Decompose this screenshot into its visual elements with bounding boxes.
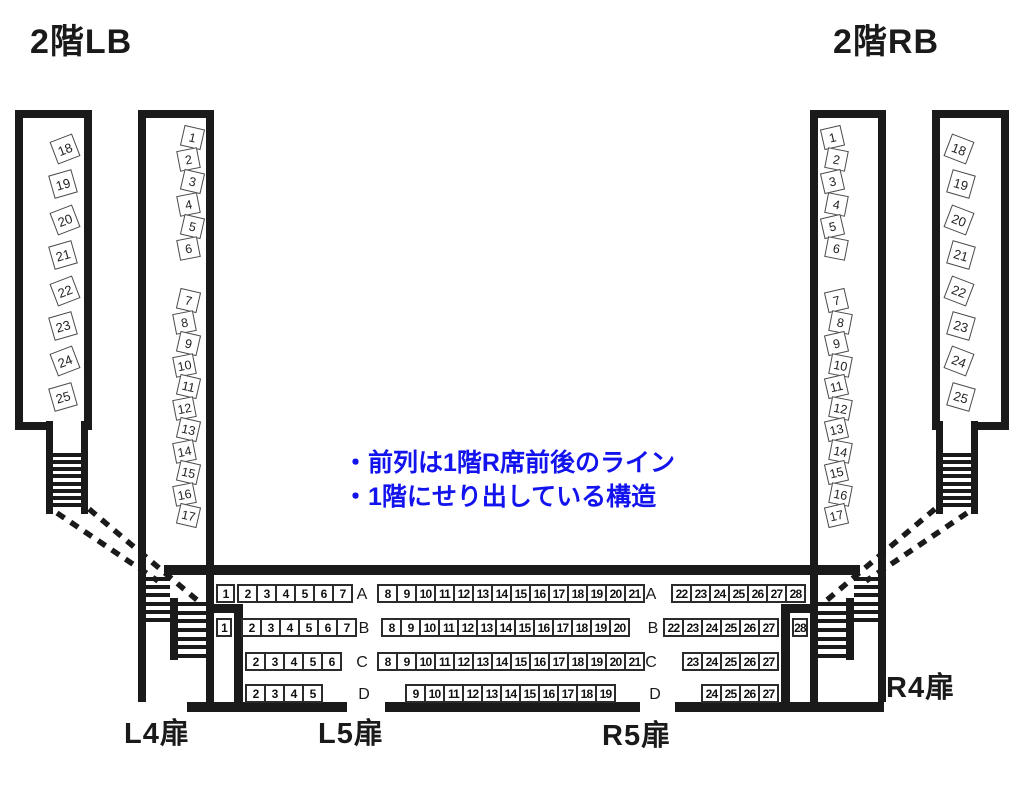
seat[interactable]: 2	[241, 618, 262, 637]
seat[interactable]: 14	[500, 684, 521, 703]
seat[interactable]: 23	[682, 652, 703, 671]
seat[interactable]: 14	[172, 439, 197, 464]
wall	[206, 575, 214, 702]
row-c-label: C	[640, 654, 662, 672]
stair-step	[943, 482, 971, 486]
seat[interactable]: 7	[175, 288, 200, 313]
seat[interactable]: 2	[237, 584, 258, 603]
seat[interactable]: 19	[590, 618, 611, 637]
seat[interactable]: 18	[571, 618, 592, 637]
stair-step	[854, 577, 878, 581]
seat[interactable]: 15	[823, 460, 848, 485]
wall	[138, 575, 146, 702]
seat[interactable]: 16	[529, 652, 550, 671]
seat[interactable]: 13	[472, 584, 493, 603]
stair-step	[854, 593, 878, 597]
seat[interactable]: 13	[823, 417, 848, 442]
seat[interactable]: 10	[419, 618, 440, 637]
row-b-label: B	[353, 620, 375, 638]
seat[interactable]: 12	[453, 652, 474, 671]
seat[interactable]: 26	[739, 684, 760, 703]
seat[interactable]: 22	[663, 618, 684, 637]
seat[interactable]: 17	[557, 684, 578, 703]
stair-step	[146, 618, 170, 622]
row-b-right-block: 222324252627	[663, 618, 779, 637]
seat[interactable]: 16	[529, 584, 550, 603]
door-label-r5: R5扉	[602, 712, 671, 754]
row-a-right-block: 22232425262728	[671, 584, 806, 603]
seat[interactable]: 12	[172, 396, 197, 421]
seat[interactable]: 18	[567, 584, 588, 603]
row-a-mid-block: 89101112131415161718192021	[377, 584, 645, 603]
row-c-label: C	[351, 654, 373, 672]
stair-step	[818, 602, 846, 606]
seat[interactable]: 5	[179, 214, 204, 239]
seat[interactable]: 10	[415, 584, 436, 603]
seat[interactable]: 19	[586, 584, 607, 603]
seat[interactable]: 22	[671, 584, 692, 603]
seat[interactable]: 17	[548, 652, 569, 671]
stair-step	[943, 460, 971, 464]
seat[interactable]: 4	[275, 584, 296, 603]
seat[interactable]: 12	[457, 618, 478, 637]
seat[interactable]: 2	[245, 684, 266, 703]
annotation-line-1: ・前列は1階R席前後のライン	[343, 446, 675, 480]
row-b-seat-28: 28	[792, 618, 808, 637]
stair-wall	[46, 421, 53, 514]
seat[interactable]: 24	[709, 584, 730, 603]
seat[interactable]: 9	[396, 652, 417, 671]
seat[interactable]: 14	[491, 584, 512, 603]
seat[interactable]: 9	[405, 684, 426, 703]
seat[interactable]: 16	[172, 482, 197, 507]
annotation-notes: ・前列は1階R席前後のライン ・1階にせり出している構造	[343, 446, 675, 514]
seat[interactable]: 10	[828, 353, 853, 378]
row-d-mid-block: 910111213141516171819	[405, 684, 616, 703]
stair-step	[818, 628, 846, 632]
stair-step	[53, 474, 81, 478]
seat[interactable]: 23	[682, 618, 703, 637]
seat[interactable]: 5	[294, 584, 315, 603]
row-a-label: A	[351, 586, 373, 604]
stair-step	[854, 602, 878, 606]
rb-staircase	[943, 453, 971, 507]
stair-step	[178, 645, 206, 649]
section-title-2f-lb: 2階LB	[30, 14, 132, 63]
seat[interactable]: 4	[279, 618, 300, 637]
seat[interactable]: 15	[175, 460, 200, 485]
l4-staircase	[178, 602, 206, 658]
seat[interactable]: 27	[758, 618, 779, 637]
r4-staircase	[818, 602, 846, 658]
row-c-mid-block: 89101112131415161718192021	[377, 652, 645, 671]
seat[interactable]: 1	[179, 125, 204, 150]
row-d-right-block: 24252627	[701, 684, 779, 703]
stair-wall	[936, 421, 943, 514]
seat[interactable]: 1	[216, 584, 235, 603]
stair-step	[53, 460, 81, 464]
lb-outer-block	[15, 110, 92, 430]
seat[interactable]: 10	[424, 684, 445, 703]
seat[interactable]: 28	[785, 584, 806, 603]
seat[interactable]: 5	[302, 652, 323, 671]
seat[interactable]: 2	[176, 147, 201, 172]
lb-lower-staircase	[146, 577, 170, 622]
wall	[781, 604, 790, 702]
seat[interactable]: 16	[828, 482, 853, 507]
seat[interactable]: 2	[245, 652, 266, 671]
seat[interactable]: 12	[453, 584, 474, 603]
stair-step	[53, 453, 81, 457]
seat[interactable]: 1	[216, 618, 232, 637]
stair-step	[178, 619, 206, 623]
seat[interactable]: 5	[302, 684, 323, 703]
annotation-line-2: ・1階にせり出している構造	[343, 480, 675, 514]
seat[interactable]: 11	[823, 374, 848, 399]
row-d-label: D	[353, 686, 375, 704]
seat[interactable]: 13	[481, 684, 502, 703]
section-title-2f-rb: 2階RB	[833, 14, 939, 63]
seat[interactable]: 9	[823, 331, 848, 356]
seating-chart-2f-balcony: 2階LB 2階RB 1819202122232425 123456 789101…	[0, 0, 1024, 787]
seat[interactable]: 10	[415, 652, 436, 671]
seat[interactable]: 11	[434, 584, 455, 603]
stair-step	[943, 489, 971, 493]
stair-step	[178, 654, 206, 658]
seat[interactable]: 17	[823, 503, 848, 528]
stair-step	[818, 611, 846, 615]
seat[interactable]: 8	[172, 310, 197, 335]
seat[interactable]: 4	[283, 652, 304, 671]
rb-lower-staircase	[854, 577, 878, 622]
stair-step	[178, 602, 206, 606]
seat[interactable]: 11	[438, 618, 459, 637]
seat[interactable]: 19	[595, 684, 616, 703]
stair-step	[178, 628, 206, 632]
stair-step	[178, 637, 206, 641]
seat[interactable]: 26	[747, 584, 768, 603]
door-label-l5: L5扉	[318, 710, 384, 752]
seat[interactable]: 12	[462, 684, 483, 703]
seat[interactable]: 13	[175, 417, 200, 442]
seat[interactable]: 8	[381, 618, 402, 637]
seat[interactable]: 4	[176, 192, 201, 217]
seat[interactable]: 7	[332, 584, 353, 603]
seat[interactable]: 6	[313, 584, 334, 603]
seat[interactable]: 4	[824, 192, 849, 217]
balcony-front-edge	[164, 565, 860, 575]
stair-step	[146, 610, 170, 614]
seat[interactable]: 14	[491, 652, 512, 671]
row-front-edge	[385, 702, 640, 712]
stair-step	[53, 489, 81, 493]
seat[interactable]: 24	[701, 684, 722, 703]
seat[interactable]: 7	[823, 288, 848, 313]
stair-step	[943, 467, 971, 471]
row-d-label: D	[644, 686, 666, 704]
seat[interactable]: 6	[824, 236, 849, 261]
seat[interactable]: 3	[264, 652, 285, 671]
seat[interactable]: 20	[609, 618, 630, 637]
seat[interactable]: 9	[175, 331, 200, 356]
row-b-label: B	[642, 620, 664, 638]
seat[interactable]: 14	[495, 618, 516, 637]
seat[interactable]: 18	[576, 684, 597, 703]
stair-wall	[170, 598, 178, 660]
stair-step	[854, 610, 878, 614]
seat[interactable]: 15	[519, 684, 540, 703]
rb-outer-block	[932, 110, 1009, 430]
lb-staircase	[53, 453, 81, 507]
seat[interactable]: 15	[510, 652, 531, 671]
seat[interactable]: 3	[260, 618, 281, 637]
stair-step	[53, 467, 81, 471]
seat[interactable]: 16	[533, 618, 554, 637]
seat[interactable]: 17	[548, 584, 569, 603]
seat[interactable]: 24	[701, 618, 722, 637]
row-a-seat-1: 1	[216, 584, 235, 603]
seat[interactable]: 27	[758, 684, 779, 703]
seat[interactable]: 14	[828, 439, 853, 464]
stair-step	[818, 637, 846, 641]
stair-wall	[846, 598, 854, 660]
seat[interactable]: 6	[317, 618, 338, 637]
seat[interactable]: 1	[819, 125, 844, 150]
seat[interactable]: 11	[434, 652, 455, 671]
row-a-left-block: 234567	[237, 584, 353, 603]
seat[interactable]: 25	[720, 684, 741, 703]
seat[interactable]: 26	[739, 618, 760, 637]
row-b-seat-1: 1	[216, 618, 232, 637]
seat[interactable]: 9	[396, 584, 417, 603]
wall	[878, 575, 886, 702]
seat[interactable]: 15	[510, 584, 531, 603]
stair-step	[146, 593, 170, 597]
seat[interactable]: 8	[377, 652, 398, 671]
stair-step	[53, 503, 81, 507]
row-front-edge	[675, 702, 884, 712]
seat[interactable]: 6	[176, 236, 201, 261]
seat[interactable]: 25	[720, 652, 741, 671]
seat[interactable]: 13	[476, 618, 497, 637]
row-c-right-block: 2324252627	[682, 652, 779, 671]
stair-step	[818, 654, 846, 658]
row-b-mid-block: 891011121314151617181920	[381, 618, 630, 637]
stair-step	[178, 611, 206, 615]
stair-wall	[81, 421, 88, 514]
stair-step	[146, 602, 170, 606]
seat[interactable]: 5	[819, 214, 844, 239]
row-d-left-block: 2345	[245, 684, 323, 703]
seat[interactable]: 16	[538, 684, 559, 703]
seat[interactable]: 24	[701, 652, 722, 671]
stair-opening	[53, 421, 81, 432]
row-c-left-block: 23456	[245, 652, 342, 671]
seat[interactable]: 20	[605, 652, 626, 671]
seat[interactable]: 25	[720, 618, 741, 637]
seat[interactable]: 27	[758, 652, 779, 671]
seat[interactable]: 3	[264, 684, 285, 703]
seat[interactable]: 23	[690, 584, 711, 603]
row-b-left-block: 234567	[241, 618, 357, 637]
seat[interactable]: 26	[739, 652, 760, 671]
door-label-r4: R4扉	[886, 664, 955, 706]
stair-step	[854, 618, 878, 622]
seat[interactable]: 8	[377, 584, 398, 603]
seat[interactable]: 19	[586, 652, 607, 671]
stair-step	[943, 503, 971, 507]
stair-step	[943, 474, 971, 478]
seat[interactable]: 8	[828, 310, 853, 335]
seat[interactable]: 12	[828, 396, 853, 421]
seat[interactable]: 17	[552, 618, 573, 637]
seat[interactable]: 10	[172, 353, 197, 378]
door-label-l4: L4扉	[124, 710, 190, 752]
seat[interactable]: 6	[321, 652, 342, 671]
seat[interactable]: 3	[256, 584, 277, 603]
seat[interactable]: 4	[283, 684, 304, 703]
stair-step	[818, 619, 846, 623]
stair-step	[943, 453, 971, 457]
seat[interactable]: 9	[400, 618, 421, 637]
stair-step	[53, 496, 81, 500]
stair-step	[818, 645, 846, 649]
row-a-label: A	[640, 586, 662, 604]
seat[interactable]: 17	[175, 503, 200, 528]
seat[interactable]: 27	[766, 584, 787, 603]
stair-step	[146, 577, 170, 581]
stair-step	[53, 482, 81, 486]
seat[interactable]: 2	[824, 147, 849, 172]
seat[interactable]: 20	[605, 584, 626, 603]
stair-step	[854, 585, 878, 589]
seat[interactable]: 11	[175, 374, 200, 399]
seat[interactable]: 13	[472, 652, 493, 671]
wall	[810, 575, 818, 702]
stair-step	[146, 585, 170, 589]
seat[interactable]: 18	[567, 652, 588, 671]
stair-step	[943, 496, 971, 500]
stair-wall	[971, 421, 978, 514]
seat[interactable]: 25	[728, 584, 749, 603]
seat[interactable]: 28	[792, 618, 808, 637]
stair-opening	[943, 421, 971, 432]
seat[interactable]: 5	[298, 618, 319, 637]
seat[interactable]: 15	[514, 618, 535, 637]
seat[interactable]: 11	[443, 684, 464, 703]
